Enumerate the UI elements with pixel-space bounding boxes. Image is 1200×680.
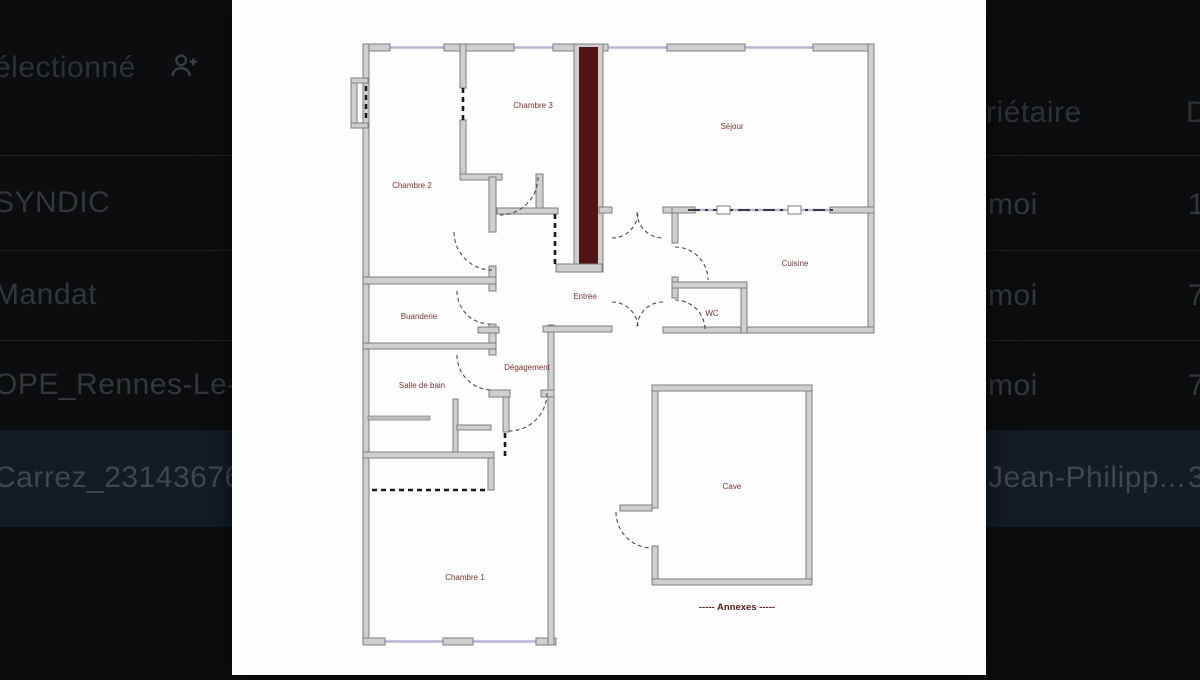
room-label-chambre-3: Chambre 3 xyxy=(513,101,553,110)
file-date: 7 xyxy=(1188,369,1200,403)
file-owner: Jean-Philipp... xyxy=(988,461,1186,495)
selection-count-label: électionné xyxy=(0,51,136,85)
room-label-chambre-2: Chambre 2 xyxy=(392,181,432,190)
floorplan-preview-panel: Chambre 3 Chambre 2 Séjour Cuisine Entré… xyxy=(232,0,986,675)
file-date: 3 xyxy=(1188,461,1200,495)
room-label-salle-de-bain: Salle de bain xyxy=(399,381,445,390)
room-label-buanderie: Buanderie xyxy=(401,312,438,321)
file-date: 7 xyxy=(1188,279,1200,313)
file-owner: moi xyxy=(988,369,1038,403)
file-owner: moi xyxy=(988,188,1038,222)
room-label-wc: WC xyxy=(705,309,719,318)
cave-walls xyxy=(620,385,812,585)
file-name[interactable]: Mandat xyxy=(0,278,97,312)
file-date: 1 xyxy=(1188,188,1200,222)
annexes-section-label: ----- Annexes ----- xyxy=(699,602,775,613)
column-header-owner[interactable]: riétaire xyxy=(986,96,1082,130)
partition-symbol xyxy=(717,206,730,214)
room-label-chambre-1: Chambre 1 xyxy=(445,573,485,582)
column-header-date[interactable]: D xyxy=(1186,96,1200,130)
add-user-icon[interactable] xyxy=(167,49,201,83)
chimney-duct xyxy=(556,44,603,272)
room-label-entree: Entrée xyxy=(573,292,597,301)
room-label-degagement: Dégagement xyxy=(504,363,551,372)
room-label-sejour: Séjour xyxy=(720,122,743,131)
partition-symbol xyxy=(788,206,801,214)
room-label-cuisine: Cuisine xyxy=(782,259,809,268)
floorplan-drawing: Chambre 3 Chambre 2 Séjour Cuisine Entré… xyxy=(232,0,986,675)
file-owner: moi xyxy=(988,279,1038,313)
room-label-cave: Cave xyxy=(723,482,742,491)
file-name[interactable]: SYNDIC xyxy=(0,186,110,220)
